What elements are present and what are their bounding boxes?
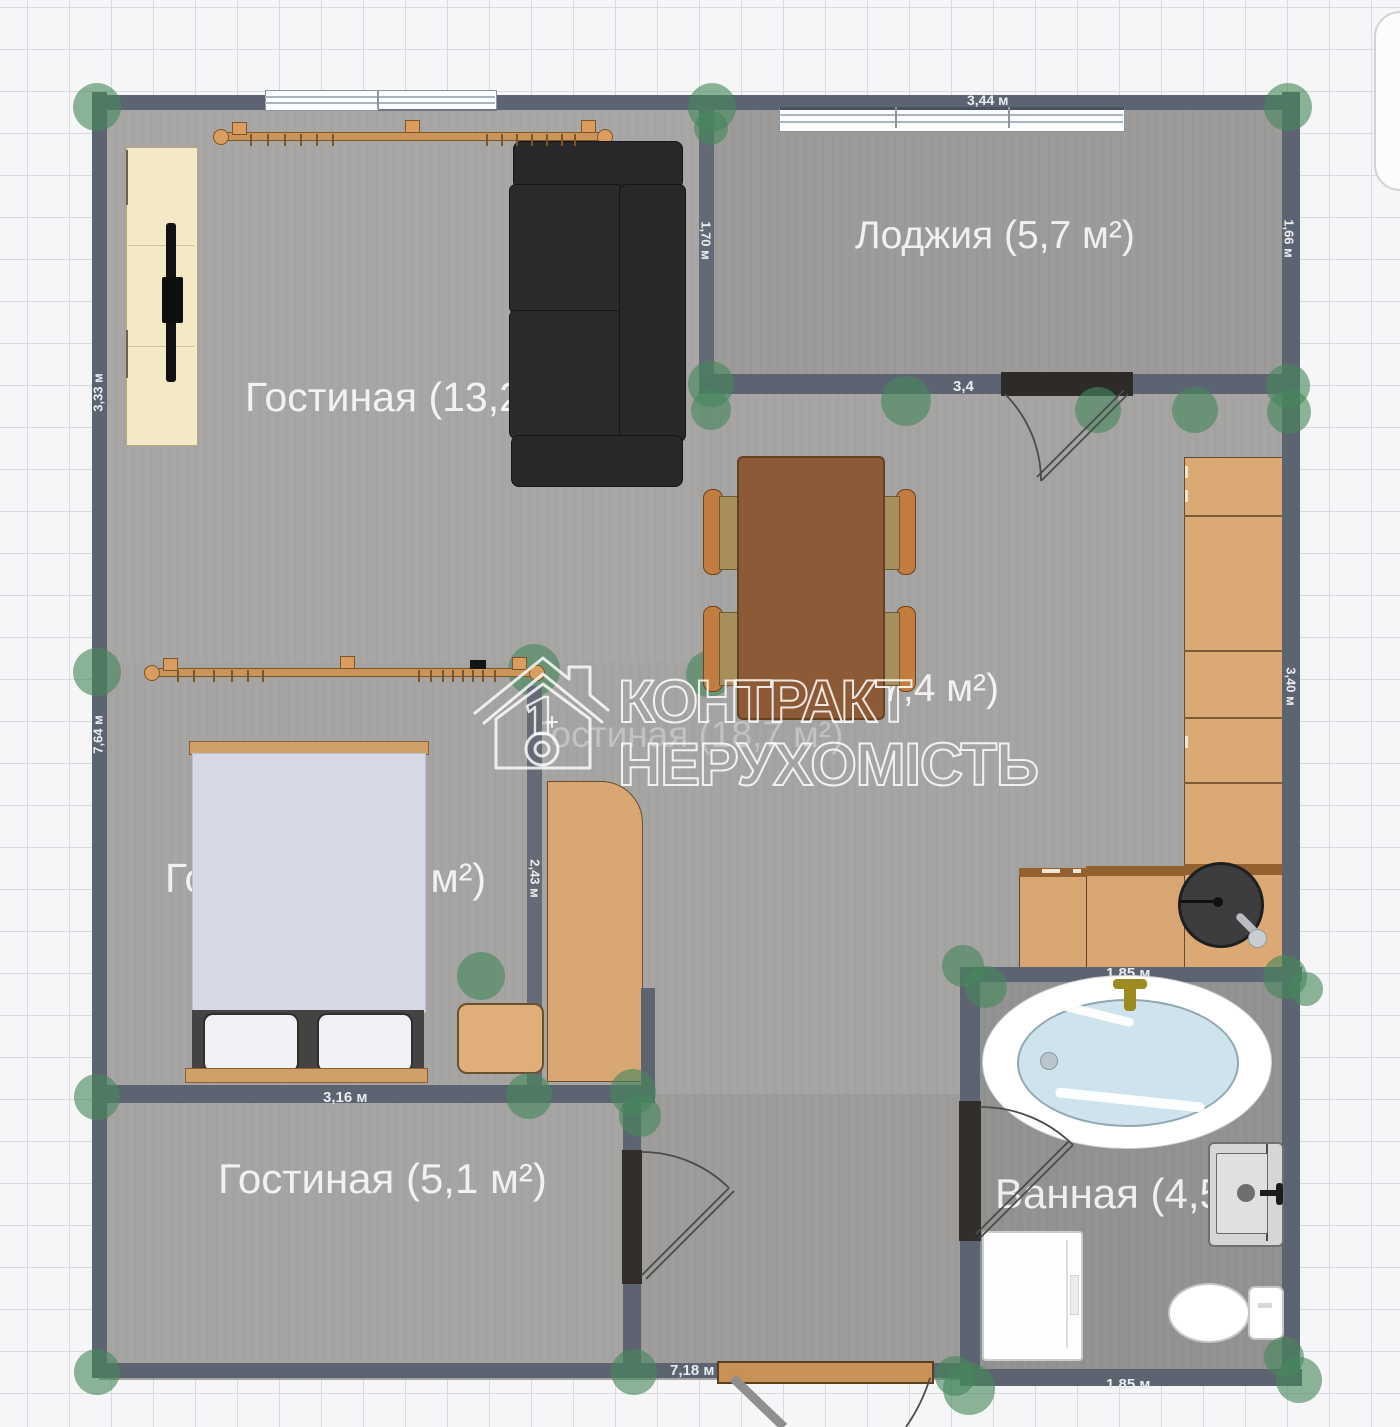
svg-text:НЕРУХОМІСТЬ: НЕРУХОМІСТЬ <box>618 731 1039 798</box>
svg-text:КОНТРАКТ: КОНТРАКТ <box>618 668 912 735</box>
